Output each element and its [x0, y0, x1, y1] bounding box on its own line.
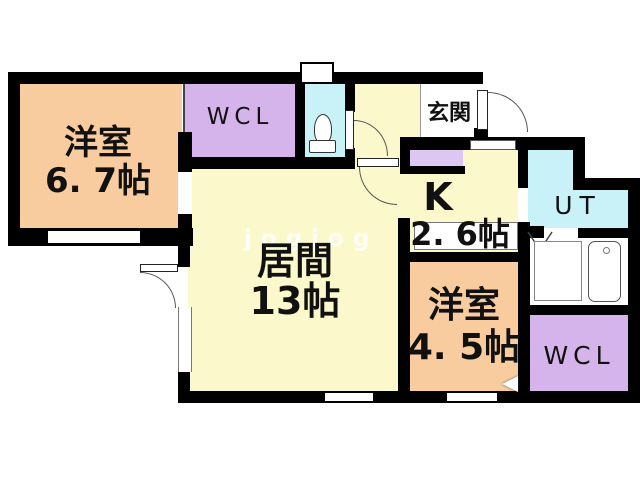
toilet-door-leaf — [345, 110, 354, 150]
wall — [180, 157, 355, 169]
entrance-door-arc — [488, 92, 528, 132]
wcl-top-name: WCL — [207, 104, 274, 130]
bedroom1-name: 洋室 — [64, 124, 132, 162]
wall — [178, 240, 190, 267]
living-label: 居間 13帖 — [210, 240, 380, 322]
wcl-bottom-name: WCL — [543, 341, 614, 370]
bedroom1-area: 6. 7帖 — [45, 162, 151, 200]
bathtub-drain-icon — [603, 247, 610, 254]
entrance-door-leaf — [477, 90, 488, 130]
living-area: 13帖 — [250, 281, 341, 321]
bedroom1-label: 洋室 6. 7帖 — [18, 116, 178, 208]
entrance-label: 玄関 — [420, 96, 478, 126]
wall — [628, 178, 640, 403]
utility-name: UT — [554, 191, 602, 220]
window-living-bottom — [325, 393, 373, 401]
bedroom2-area: 4. 5帖 — [408, 327, 520, 369]
room-utility-floor-upper — [528, 150, 573, 190]
wall — [178, 391, 640, 403]
entrance-name: 玄関 — [427, 95, 471, 127]
bedroom2-name: 洋室 — [428, 285, 500, 327]
wall — [400, 146, 410, 173]
wall — [8, 72, 300, 84]
toilet-base-icon — [309, 140, 336, 153]
utility-label: UT — [528, 190, 628, 220]
window-bedroom1 — [48, 231, 140, 243]
wall — [578, 228, 630, 238]
wall — [345, 84, 355, 112]
wall — [518, 145, 528, 188]
window-bedroom2-bottom — [447, 393, 497, 401]
wcl-bottom-label: WCL — [530, 340, 628, 370]
terrace-door-arc — [140, 272, 176, 308]
living-door-leaf — [357, 158, 399, 167]
terrace-door-leaf — [140, 264, 178, 272]
kitchen-area-label: 2. 6帖 — [400, 212, 520, 252]
window-toilet — [300, 62, 334, 84]
bathroom-washarea-icon — [534, 241, 582, 301]
floor-plan: jogjog 洋室 6. 7帖 WCL 玄関 K 2. 6帖 UT 居間 13帖… — [0, 0, 640, 480]
entrance-counter — [470, 140, 516, 150]
opening-bedroom1-living — [178, 172, 192, 214]
shoe-cabinet — [405, 150, 463, 166]
bedroom2-door-mark — [502, 376, 518, 392]
wall — [178, 132, 192, 172]
wcl-top-label: WCL — [184, 102, 296, 132]
living-name: 居間 — [257, 241, 333, 281]
wall — [295, 84, 305, 164]
window-living-left — [178, 307, 192, 372]
bedroom2-label: 洋室 4. 5帖 — [408, 278, 520, 376]
wall — [520, 305, 630, 315]
wall — [334, 72, 483, 84]
kitchen-area: 2. 6帖 — [410, 209, 510, 255]
